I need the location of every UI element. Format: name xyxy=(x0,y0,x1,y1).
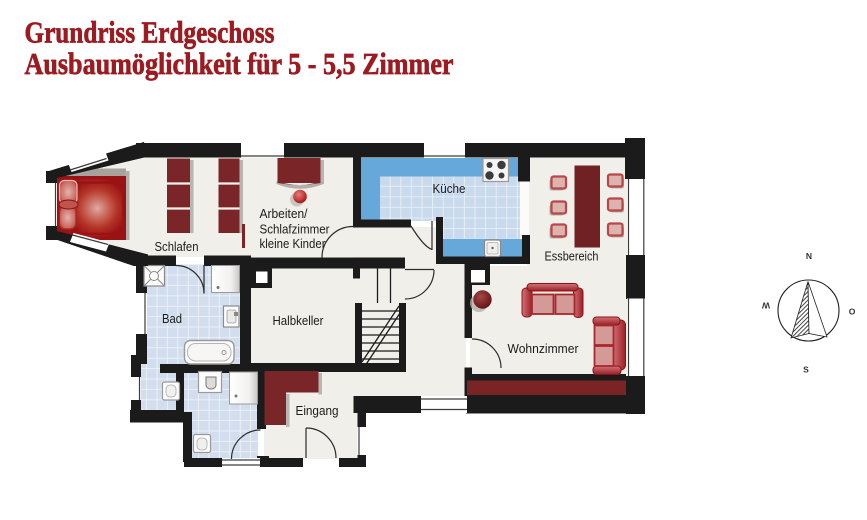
svg-text:Wohnzimmer: Wohnzimmer xyxy=(508,341,580,356)
svg-text:Ausbaumöglichkeit für 5 - 5,5: Ausbaumöglichkeit für 5 - 5,5 Zimmer xyxy=(25,46,454,81)
svg-text:Halbkeller: Halbkeller xyxy=(273,313,325,328)
svg-text:S: S xyxy=(803,365,809,375)
svg-text:Schlafen: Schlafen xyxy=(155,239,199,254)
svg-text:Bad: Bad xyxy=(162,311,182,326)
svg-text:Arbeiten/: Arbeiten/ xyxy=(260,206,308,221)
svg-text:W: W xyxy=(761,301,770,311)
svg-text:N: N xyxy=(806,251,812,261)
svg-text:Essbereich: Essbereich xyxy=(545,249,599,264)
svg-text:kleine Kinder: kleine Kinder xyxy=(260,236,327,251)
svg-text:Eingang: Eingang xyxy=(296,403,339,418)
svg-text:Küche: Küche xyxy=(433,181,466,196)
svg-text:O: O xyxy=(849,307,856,317)
svg-text:Schlafzimmer: Schlafzimmer xyxy=(260,222,331,237)
svg-text:Grundriss Erdgeschoss: Grundriss Erdgeschoss xyxy=(25,15,275,50)
